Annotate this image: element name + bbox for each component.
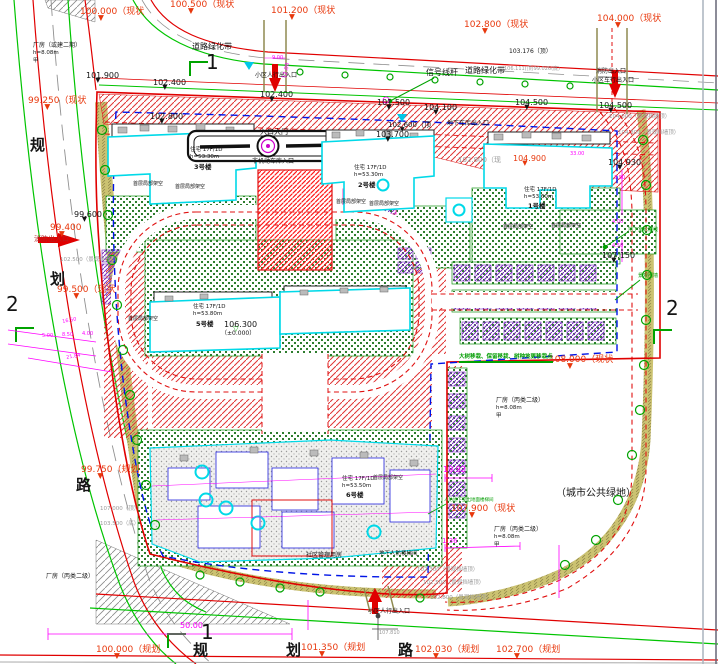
site-plan-drawing [0,0,718,664]
survey-pole [372,614,398,640]
site-plan: 100.000（现状▼100.500（现状▼101.200（现状▼102.800… [0,0,718,664]
axis-hatch-block [258,170,332,270]
